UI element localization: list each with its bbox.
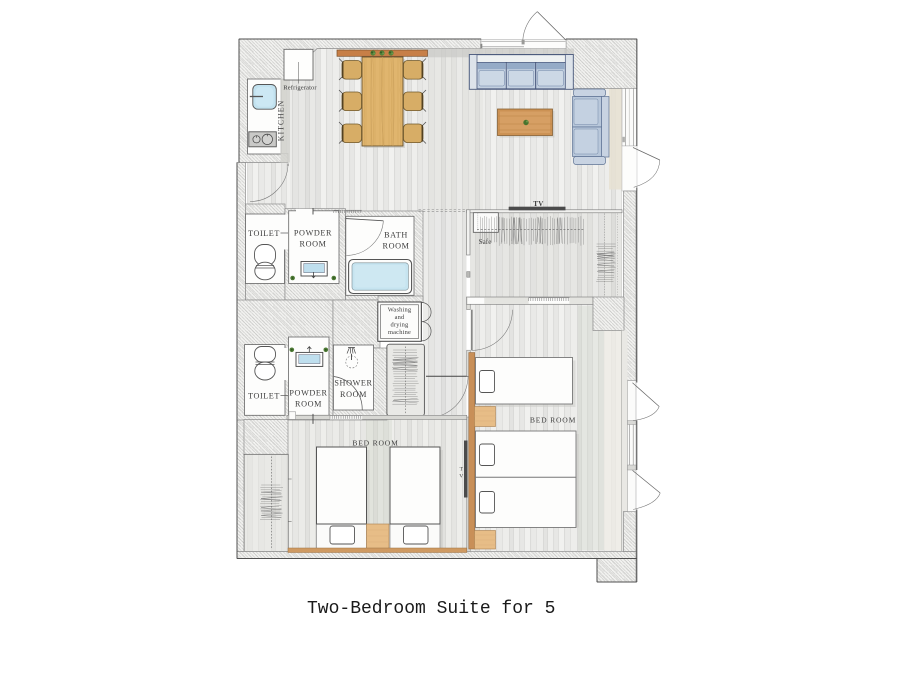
- svg-text:SHOWER: SHOWER: [334, 379, 372, 388]
- svg-text:T: T: [460, 467, 464, 473]
- svg-text:Washing: Washing: [388, 307, 412, 314]
- svg-text:V: V: [459, 474, 463, 480]
- svg-text:TV: TV: [533, 200, 544, 208]
- svg-text:BED ROOM: BED ROOM: [352, 439, 398, 448]
- svg-text:KITCHEN: KITCHEN: [277, 100, 286, 141]
- svg-text:ROOM: ROOM: [295, 400, 322, 409]
- svg-text:and: and: [395, 314, 405, 321]
- svg-text:TOILET: TOILET: [248, 229, 280, 238]
- svg-text:BATH: BATH: [384, 231, 408, 240]
- svg-text:ROOM: ROOM: [340, 390, 367, 399]
- svg-text:BED ROOM: BED ROOM: [530, 416, 576, 425]
- svg-text:ROOM: ROOM: [300, 240, 327, 249]
- svg-text:TOILET: TOILET: [248, 392, 280, 401]
- svg-text:POWDER: POWDER: [289, 389, 327, 398]
- svg-text:machine: machine: [388, 329, 411, 336]
- svg-text:drying: drying: [391, 322, 409, 329]
- svg-text:ROOM: ROOM: [383, 242, 410, 251]
- svg-text:Refrigerator: Refrigerator: [283, 85, 317, 92]
- svg-text:POWDER: POWDER: [294, 229, 332, 238]
